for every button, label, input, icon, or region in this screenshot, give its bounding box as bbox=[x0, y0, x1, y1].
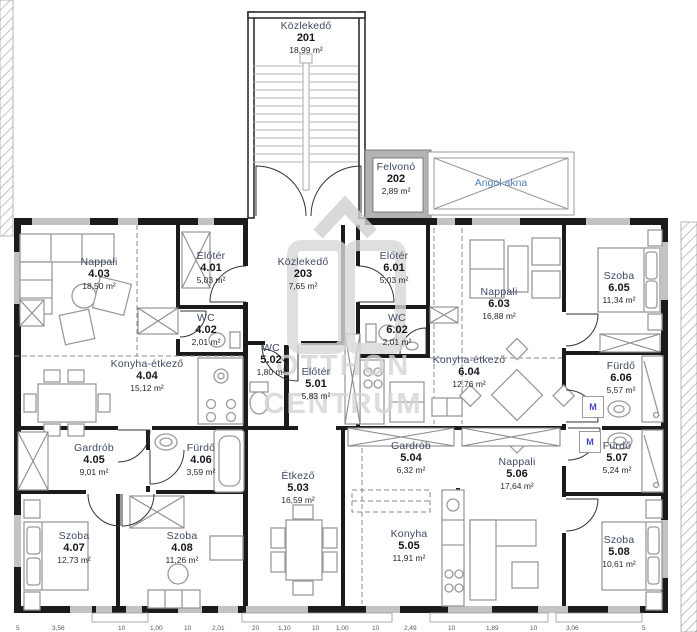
shower-5-07 bbox=[642, 430, 663, 492]
sink-5-07 bbox=[608, 433, 632, 449]
toilet-4-02 bbox=[209, 332, 240, 348]
dimension-text: 10 bbox=[118, 625, 125, 632]
desk-4-08 bbox=[210, 536, 243, 560]
dining-table-5-03 bbox=[271, 505, 337, 595]
elevator-shaft bbox=[365, 150, 431, 220]
dimension-text: 20 bbox=[252, 625, 259, 632]
coffee-table-5-06 bbox=[512, 562, 538, 588]
dimension-text: 3,56 bbox=[52, 625, 65, 632]
dimension-text: 1,89 bbox=[486, 625, 499, 632]
floor-plan-drawing bbox=[0, 0, 697, 632]
bathtub-4-06 bbox=[214, 430, 244, 492]
kitchen-counter-5-05 bbox=[442, 490, 464, 606]
dimension-text: 5 bbox=[642, 625, 646, 632]
dimension-text: 3,06 bbox=[566, 625, 579, 632]
armchair-4-03 bbox=[93, 277, 132, 316]
dimension-text: 10 bbox=[448, 625, 455, 632]
dimension-text: 10 bbox=[372, 625, 379, 632]
cabinet-6-04 bbox=[432, 398, 462, 416]
sofa-set-6-03 bbox=[470, 238, 560, 298]
kitchen-counter-4-04 bbox=[198, 358, 243, 424]
bed-6-05 bbox=[598, 230, 662, 330]
shower-6-06 bbox=[642, 356, 663, 422]
washing-machine-marker: M bbox=[582, 396, 604, 418]
sink-4-06 bbox=[155, 434, 177, 450]
bed-4-07 bbox=[24, 500, 88, 610]
washing-machine-marker: M bbox=[579, 431, 601, 453]
dimension-text: 10 bbox=[530, 625, 537, 632]
dimension-text: 10 bbox=[184, 625, 191, 632]
sink-6-06 bbox=[608, 401, 630, 417]
kitchen-counter-6-04 bbox=[360, 360, 424, 424]
dimension-text: 5 bbox=[16, 625, 20, 632]
side-table-4-03 bbox=[72, 284, 96, 308]
floor-plan: OTTHON CENTRUM M M Közlekedő 201 18,99 m… bbox=[0, 0, 697, 632]
hatching bbox=[0, 0, 697, 632]
dimension-text: 2,01 bbox=[212, 625, 225, 632]
cabinet-4-08 bbox=[148, 590, 200, 608]
dimension-text: 1,10 bbox=[278, 625, 291, 632]
toilet-5-02 bbox=[250, 382, 268, 414]
dimension-text: 1,00 bbox=[336, 625, 349, 632]
bed-5-08 bbox=[602, 500, 662, 610]
chair-4-08 bbox=[168, 564, 188, 584]
dimension-text: 10 bbox=[312, 625, 319, 632]
window-sills bbox=[92, 613, 642, 622]
dimension-text: 2,49 bbox=[404, 625, 417, 632]
light-well-label: Angol akna bbox=[451, 177, 551, 189]
toilet-6-02 bbox=[366, 324, 418, 350]
dimension-text: 1,00 bbox=[150, 625, 163, 632]
armchair-4-03b bbox=[59, 309, 95, 345]
